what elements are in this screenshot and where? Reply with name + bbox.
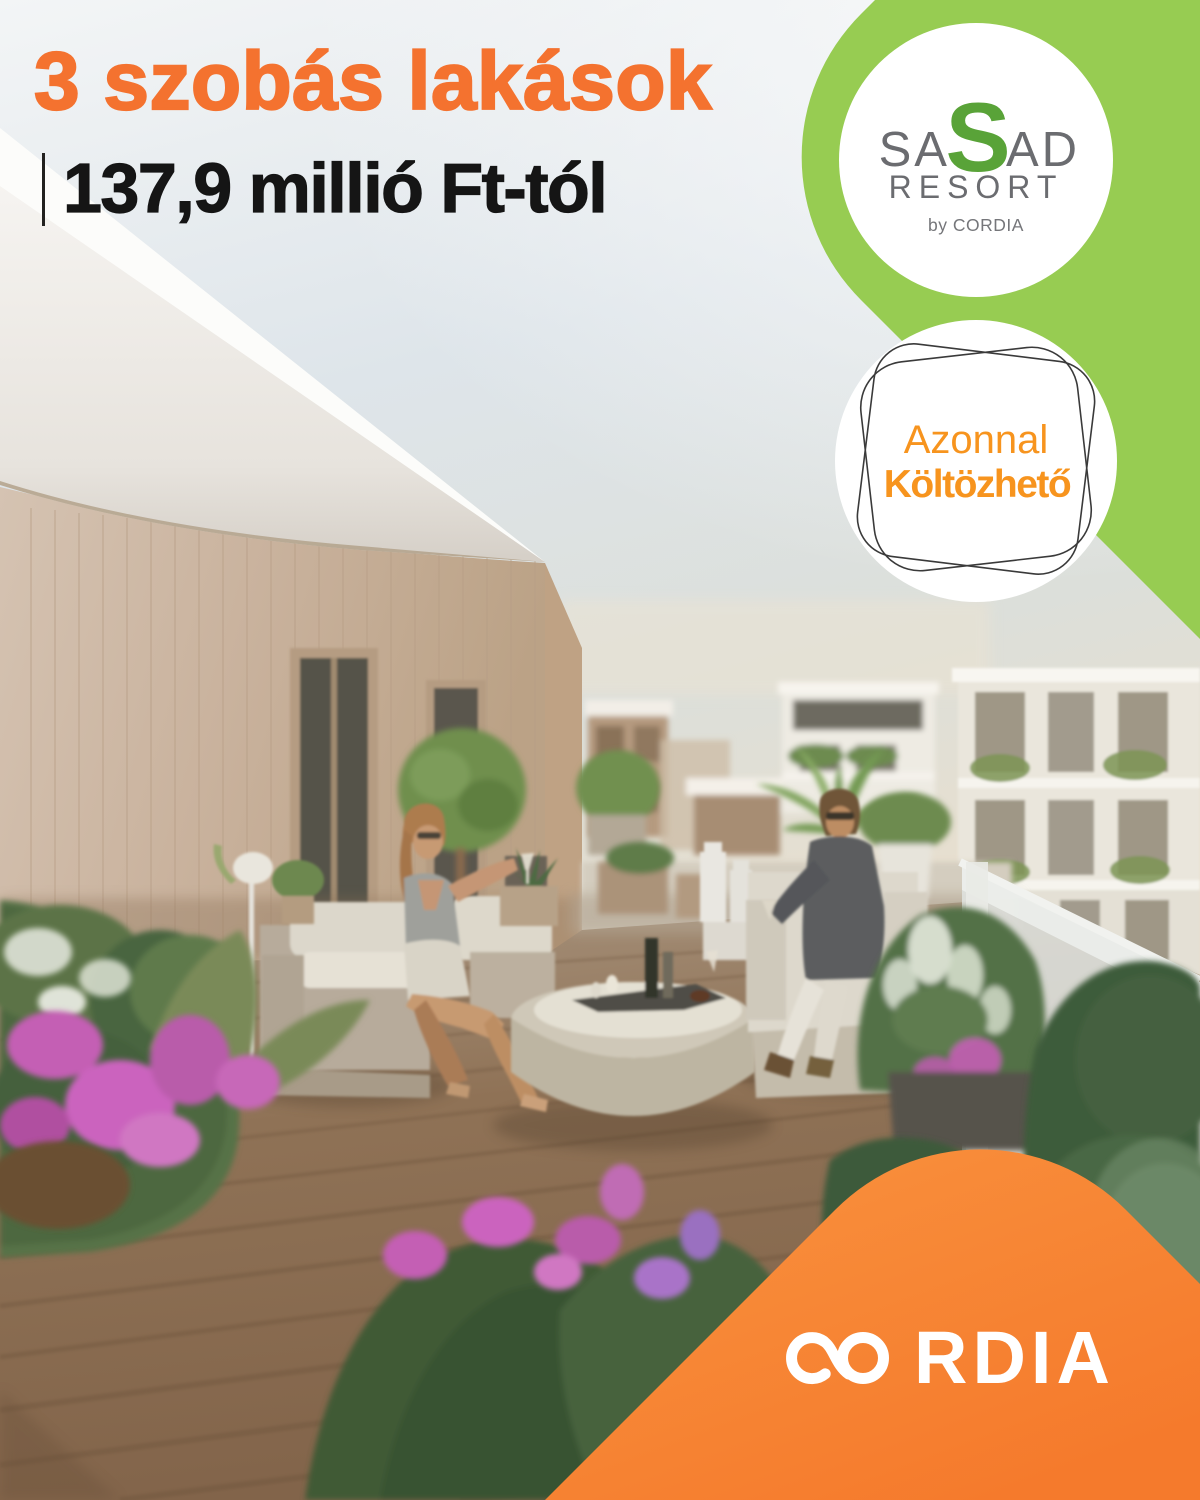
svg-text:Költözhető: Költözhető [884,463,1071,506]
svg-text:RDIA: RDIA [914,1316,1115,1399]
svg-text:RESORT: RESORT [889,169,1064,205]
svg-text:by CORDIA: by CORDIA [928,215,1024,235]
svg-text:Azonnal: Azonnal [904,418,1049,462]
